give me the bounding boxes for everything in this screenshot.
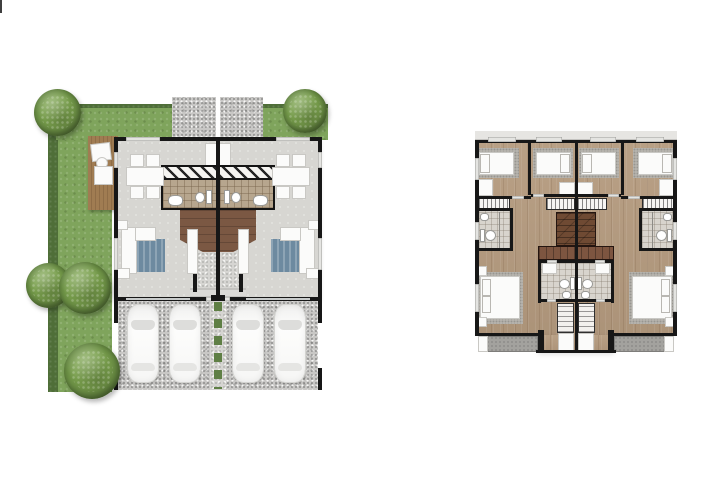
- desk: [660, 180, 674, 195]
- wardrobe: [546, 198, 575, 210]
- shower-screen: [499, 212, 500, 248]
- desk: [478, 180, 492, 195]
- window: [673, 222, 677, 240]
- wall: [510, 208, 513, 250]
- wardrobe: [577, 198, 607, 210]
- pillow: [561, 155, 569, 172]
- window: [488, 137, 516, 142]
- wall: [477, 248, 513, 251]
- wall: [639, 208, 675, 211]
- door-opening: [512, 196, 524, 199]
- door-opening: [628, 196, 640, 199]
- vanity: [543, 264, 556, 273]
- toilet: [582, 279, 593, 289]
- toilet: [559, 279, 570, 289]
- window: [673, 284, 677, 312]
- toilet: [485, 230, 496, 241]
- walk-in-closet-shelves: [578, 303, 595, 333]
- pillow: [483, 280, 490, 295]
- wall: [611, 263, 614, 303]
- balcony-planter: [479, 337, 487, 351]
- shower-screen: [652, 212, 653, 248]
- door-opening: [533, 194, 544, 197]
- window: [590, 137, 616, 142]
- door-opening: [596, 299, 605, 302]
- wall: [538, 263, 541, 303]
- pillow: [583, 155, 591, 172]
- sink: [581, 291, 590, 299]
- window: [636, 137, 664, 142]
- balcony-planter: [665, 337, 673, 351]
- desk: [578, 183, 592, 194]
- closet-bench: [559, 334, 573, 351]
- pillow: [662, 280, 669, 295]
- wall: [639, 208, 642, 250]
- sink: [480, 213, 489, 221]
- balcony: [478, 336, 538, 352]
- party-wall: [575, 140, 578, 352]
- window: [475, 284, 479, 312]
- closet-bench: [579, 334, 593, 351]
- walk-in-closet-shelves: [557, 303, 574, 333]
- window: [536, 137, 562, 142]
- pillow: [663, 155, 671, 172]
- door-opening: [547, 299, 556, 302]
- wall: [621, 142, 624, 195]
- window: [475, 222, 479, 240]
- sink: [562, 291, 571, 299]
- wall: [477, 208, 513, 211]
- floor-plan-canvas: [0, 0, 720, 496]
- toilet: [667, 229, 672, 242]
- sink: [663, 213, 672, 221]
- window: [475, 158, 479, 180]
- window: [673, 158, 677, 180]
- pillow: [481, 155, 489, 172]
- pillow: [662, 297, 669, 312]
- desk: [560, 183, 574, 194]
- toilet: [656, 230, 667, 241]
- wall: [639, 248, 675, 251]
- door-opening: [608, 194, 619, 197]
- upper-floor-plan: [0, 0, 720, 496]
- pillow: [483, 297, 490, 312]
- wall: [528, 142, 531, 195]
- vanity: [596, 264, 609, 273]
